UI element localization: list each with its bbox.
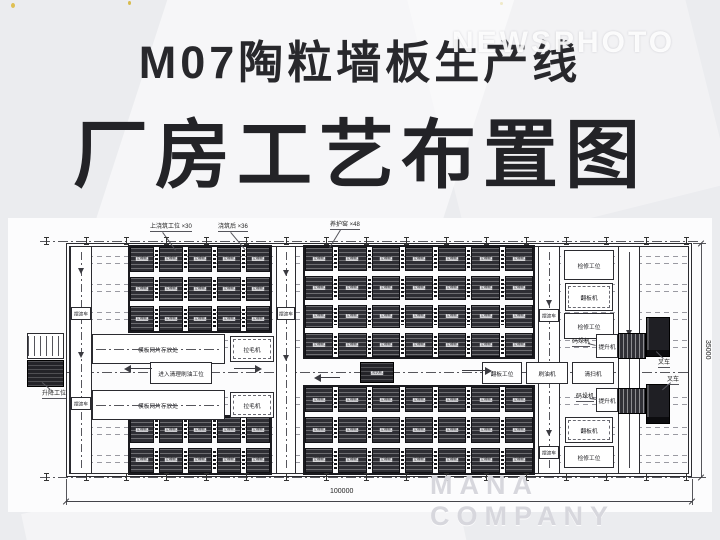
mold-cell-label: 立模机 xyxy=(413,315,425,319)
column-tick xyxy=(403,473,410,481)
mold-cell: 立模机 xyxy=(338,305,366,329)
watermark-top: NEWSPHOTO xyxy=(452,26,675,60)
mold-cell: 立模机 xyxy=(471,417,499,442)
column-tick xyxy=(483,237,490,245)
mold-cell-label: 立模机 xyxy=(165,458,177,462)
cell-separator xyxy=(434,250,437,268)
mold-cell: 立模机 xyxy=(305,276,333,300)
cell-separator xyxy=(242,250,245,269)
mold-cell-label: 立模机 xyxy=(379,257,391,261)
mold-cell: 立模机 xyxy=(246,277,270,302)
cell-separator xyxy=(501,308,504,326)
mold-cell-label: 立模机 xyxy=(446,315,458,319)
cell-separator xyxy=(242,280,245,299)
mold-cell-label: 立模机 xyxy=(194,257,206,261)
column-tick xyxy=(163,237,170,245)
station-box-label: 检修工位 xyxy=(578,453,601,462)
column-tick xyxy=(363,473,370,481)
mold-cell-label: 立模机 xyxy=(346,458,358,462)
mold-cell-label: 立模机 xyxy=(252,458,264,462)
mold-cell: 立模机 xyxy=(338,417,366,442)
mold-cell-label: 立模机 xyxy=(479,458,491,462)
mold-cell-label: 立模机 xyxy=(346,315,358,319)
ferry-car-label-text: 摆渡车 xyxy=(74,310,88,317)
callout-label: 养护窑 ×48 xyxy=(330,222,360,230)
mold-cell-label: 立模机 xyxy=(252,287,264,291)
mold-cell-label: 立模机 xyxy=(346,398,358,402)
column-tick xyxy=(683,237,690,245)
column-grid-line xyxy=(40,241,700,242)
flow-arrow xyxy=(234,368,260,369)
cell-separator xyxy=(213,250,216,269)
ferry-car-label: 摆渡车 xyxy=(71,397,91,410)
dim-text-right: 35000 xyxy=(704,340,711,359)
flow-arrow xyxy=(462,370,490,371)
mold-cell-label: 立模机 xyxy=(165,287,177,291)
mold-cell: 立模机 xyxy=(438,276,466,300)
mold-cell: 立模机 xyxy=(130,306,154,331)
station-box: 提升机 xyxy=(596,334,618,358)
mold-cell-label: 立模机 xyxy=(446,257,458,261)
column-tick xyxy=(283,237,290,245)
mold-cell: 立模机 xyxy=(217,306,241,331)
cell-separator xyxy=(467,279,470,297)
mold-cell-label: 立模机 xyxy=(136,317,148,321)
machine-fork xyxy=(646,317,670,357)
machine-grid xyxy=(618,388,646,414)
station-box: 提升机 xyxy=(596,388,618,412)
callout-label: 浇筑后 ×36 xyxy=(218,224,248,232)
station-box-inner xyxy=(233,395,271,415)
station-box-label: 进入清理刷油工位 xyxy=(158,369,204,378)
mold-cell-label: 立模机 xyxy=(313,286,325,290)
mold-cell-label: 立模机 xyxy=(223,428,235,432)
column-tick xyxy=(123,237,130,245)
cell-separator xyxy=(213,280,216,299)
cell-separator xyxy=(334,451,337,470)
mold-cell: 立模机 xyxy=(471,305,499,329)
mold-cell: 立模机 xyxy=(130,448,154,474)
station-box-label: 翻板工位 xyxy=(491,369,514,378)
mold-cell-label: 立模机 xyxy=(313,315,325,319)
cell-separator xyxy=(434,420,437,439)
mold-cell-label: 立模机 xyxy=(413,286,425,290)
mold-cell: 立模机 xyxy=(438,305,466,329)
cell-separator xyxy=(401,451,404,470)
column-tick xyxy=(83,237,90,245)
mold-cell-label: 立模机 xyxy=(313,398,325,402)
mold-cell-label: 立模机 xyxy=(446,343,458,347)
ferry-car-label: 摆渡车 xyxy=(539,446,559,459)
cell-separator xyxy=(334,250,337,268)
mold-cell-label: 立模机 xyxy=(313,428,325,432)
mold-cell: 立模机 xyxy=(246,417,270,443)
mold-cell-label: 立模机 xyxy=(513,286,525,290)
cell-separator xyxy=(155,420,158,440)
mold-cell-label: 立模机 xyxy=(136,458,148,462)
mold-cell-label: 立模机 xyxy=(252,257,264,261)
mold-cell: 立模机 xyxy=(217,417,241,443)
poster-page: M07陶粒墙板生产线 厂房工艺布置图 NEWSPHOTO 摆渡车摆渡车摆渡车摆渡… xyxy=(0,0,720,540)
column-tick xyxy=(43,473,50,481)
cell-separator xyxy=(368,336,371,354)
mold-cell: 立模机 xyxy=(305,448,333,473)
cell-separator xyxy=(501,390,504,409)
cell-separator xyxy=(242,451,245,471)
cell-separator xyxy=(467,250,470,268)
cell-separator xyxy=(368,279,371,297)
mold-cell: 立模机 xyxy=(130,277,154,302)
station-box: 进入清理刷油工位 xyxy=(150,362,212,384)
station-box-label: 提升机 xyxy=(598,396,615,405)
cell-separator xyxy=(434,336,437,354)
station-box-label: 提升机 xyxy=(598,342,615,351)
mold-cell-label: 立模机 xyxy=(223,287,235,291)
callout-label: 升降工位 xyxy=(42,391,66,399)
cell-separator xyxy=(334,308,337,326)
mold-cell: 立模机 xyxy=(372,333,400,357)
mold-cell: 立模机 xyxy=(188,306,212,331)
mold-cell-label: 立模机 xyxy=(446,458,458,462)
mold-cell: 立模机 xyxy=(405,305,433,329)
mold-cell: 立模机 xyxy=(130,247,154,272)
cell-separator xyxy=(155,451,158,471)
dim-line-right xyxy=(701,243,702,477)
mold-cell: 立模机 xyxy=(505,387,533,412)
mold-cell-label: 立模机 xyxy=(223,257,235,261)
cell-separator xyxy=(213,309,216,328)
mold-cell-label: 立模机 xyxy=(194,317,206,321)
mold-cell-label: 立模机 xyxy=(413,458,425,462)
cell-separator xyxy=(401,279,404,297)
mold-cell-label: 立模机 xyxy=(479,286,491,290)
cell-separator xyxy=(334,420,337,439)
callout-label: 叉车 xyxy=(658,360,670,368)
mold-cell: 立模机 xyxy=(217,247,241,272)
flow-arrow-down-icon xyxy=(283,355,289,364)
column-tick xyxy=(443,237,450,245)
column-tick xyxy=(243,473,250,481)
poster-title-line2: 厂房工艺布置图 xyxy=(0,94,720,203)
flow-arrow-down-icon xyxy=(78,352,84,361)
station-box: 清扫机 xyxy=(572,362,614,384)
mold-cell: 立模机 xyxy=(188,448,212,474)
cell-separator xyxy=(368,451,371,470)
station-box-label: 检修工位 xyxy=(578,322,601,331)
mold-cell: 立模机 xyxy=(338,448,366,473)
cell-separator xyxy=(434,390,437,409)
mold-cell-label: 立模机 xyxy=(413,343,425,347)
cell-separator xyxy=(467,420,470,439)
mold-cell: 立模机 xyxy=(438,333,466,357)
cell-separator xyxy=(155,280,158,299)
mold-cell: 立模机 xyxy=(159,448,183,474)
mold-cell-label: 立模机 xyxy=(223,458,235,462)
cell-separator xyxy=(213,451,216,471)
flow-arrow-down-icon xyxy=(78,268,84,277)
mold-cell-label: 立模机 xyxy=(379,315,391,319)
cell-separator xyxy=(242,420,245,440)
mold-cell-label: 立模机 xyxy=(479,398,491,402)
mold-cell: 立模机 xyxy=(505,417,533,442)
mold-cell: 立模机 xyxy=(338,276,366,300)
mold-cell: 立模机 xyxy=(405,276,433,300)
column-tick xyxy=(83,473,90,481)
mold-cell: 立模机 xyxy=(338,247,366,271)
mold-cell: 立模机 xyxy=(372,276,400,300)
mold-cell: 立模机 xyxy=(159,306,183,331)
ferry-car-label-text: 摆渡车 xyxy=(542,312,556,319)
mold-cell-label: 立模机 xyxy=(136,428,148,432)
cell-separator xyxy=(401,250,404,268)
mold-cell: 立模机 xyxy=(372,387,400,412)
mold-cell: 立模机 xyxy=(130,417,154,443)
machine-dark xyxy=(27,360,64,387)
column-tick xyxy=(243,237,250,245)
cell-separator xyxy=(501,336,504,354)
mold-cell: 立模机 xyxy=(372,417,400,442)
mold-cell-label: 立模机 xyxy=(513,398,525,402)
mold-cell: 立模机 xyxy=(159,277,183,302)
mold-cell-label: 立模机 xyxy=(446,286,458,290)
ferry-car-label-text: 摆渡车 xyxy=(542,449,556,456)
cell-separator xyxy=(368,390,371,409)
dim-text-bottom: 100000 xyxy=(330,488,353,495)
cell-separator xyxy=(334,279,337,297)
cell-separator xyxy=(401,420,404,439)
mold-cell: 立模机 xyxy=(305,417,333,442)
machine-fork xyxy=(646,384,670,424)
mold-cell: 立模机 xyxy=(372,448,400,473)
mold-cell: 立模机 xyxy=(246,247,270,272)
callout-label: 上浇筑工位 ×30 xyxy=(150,224,192,232)
cell-separator xyxy=(401,308,404,326)
mold-cell: 立模机 xyxy=(217,277,241,302)
mold-cell-label: 立模机 xyxy=(479,315,491,319)
mold-cell: 立模机 xyxy=(471,333,499,357)
station-box: 刷油机 xyxy=(526,362,568,384)
flow-arrow xyxy=(126,368,152,369)
cell-separator xyxy=(213,420,216,440)
mold-cell-label: 立模机 xyxy=(413,398,425,402)
cell-separator xyxy=(467,451,470,470)
machine-grid xyxy=(618,333,646,359)
station-box-centerline xyxy=(96,405,221,406)
mold-cell-label: 立模机 xyxy=(513,458,525,462)
mold-cell: 立模机 xyxy=(338,387,366,412)
station-box-label: 清扫机 xyxy=(584,369,601,378)
column-tick xyxy=(43,237,50,245)
cell-separator xyxy=(184,420,187,440)
cell-separator xyxy=(467,308,470,326)
mold-cell: 立模机 xyxy=(438,417,466,442)
mold-cell: 立模机 xyxy=(471,276,499,300)
mold-cell-label: 立模机 xyxy=(446,398,458,402)
mold-cell: 立模机 xyxy=(159,417,183,443)
mold-cell-label: 立模机 xyxy=(313,257,325,261)
station-box-inner xyxy=(233,339,271,359)
mold-cell: 立模机 xyxy=(338,333,366,357)
station-box-inner xyxy=(568,420,610,440)
mold-cell-label: 立模机 xyxy=(313,343,325,347)
mold-cell-label: 立模机 xyxy=(379,343,391,347)
mold-cell: 立模机 xyxy=(305,387,333,412)
cell-separator xyxy=(434,279,437,297)
mold-cell-label: 立模机 xyxy=(252,428,264,432)
cell-separator xyxy=(184,309,187,328)
mold-cell-label: 立模机 xyxy=(346,428,358,432)
column-tick xyxy=(323,473,330,481)
mold-cell-label: 立模机 xyxy=(194,458,206,462)
ferry-car-label: 摆渡车 xyxy=(277,307,295,320)
ferry-car-label-text: 摆渡车 xyxy=(279,310,293,317)
mold-cell-label: 立模机 xyxy=(136,287,148,291)
mold-cell: 立模机 xyxy=(246,306,270,331)
mold-cell-label: 立模机 xyxy=(313,458,325,462)
column-tick xyxy=(363,237,370,245)
flow-arrow-down-icon xyxy=(546,300,552,309)
cell-separator xyxy=(467,336,470,354)
mold-cell-label: 立模机 xyxy=(513,315,525,319)
lane-centerline xyxy=(629,252,630,468)
mold-cell: 立模机 xyxy=(372,247,400,271)
flow-arrow-down-icon xyxy=(283,270,289,279)
mold-cell-label: 立模机 xyxy=(379,286,391,290)
mold-cell-label: 立模机 xyxy=(379,458,391,462)
cell-separator xyxy=(368,420,371,439)
mold-cell-label: 立模机 xyxy=(346,286,358,290)
mold-cell-label: 立模机 xyxy=(479,428,491,432)
column-tick xyxy=(203,473,210,481)
machine-dark: 浇筑机 xyxy=(360,362,394,383)
station-box: 检修工位 xyxy=(564,250,614,280)
ferry-car-label: 摆渡车 xyxy=(71,307,91,320)
mold-cell-label: 立模机 xyxy=(194,287,206,291)
mold-cell-label: 立模机 xyxy=(194,428,206,432)
column-tick xyxy=(203,237,210,245)
column-tick xyxy=(563,237,570,245)
mold-cell-label: 立模机 xyxy=(513,428,525,432)
flow-arrow xyxy=(316,377,340,378)
column-tick xyxy=(323,237,330,245)
mold-cell: 立模机 xyxy=(471,247,499,271)
station-box-label: 检修工位 xyxy=(578,261,601,270)
machine-rack xyxy=(27,333,64,359)
mold-cell: 立模机 xyxy=(405,448,433,473)
watermark-bottom: MANA COMPANY xyxy=(430,470,720,532)
mold-cell-label: 立模机 xyxy=(413,257,425,261)
cell-separator xyxy=(184,250,187,269)
mold-cell: 立模机 xyxy=(438,387,466,412)
mold-cell-label: 立模机 xyxy=(252,317,264,321)
cell-separator xyxy=(155,309,158,328)
mold-cell-label: 立模机 xyxy=(446,428,458,432)
station-box-centerline xyxy=(96,349,221,350)
mold-cell-label: 立模机 xyxy=(479,343,491,347)
column-tick xyxy=(523,237,530,245)
cell-separator xyxy=(501,420,504,439)
column-tick xyxy=(603,237,610,245)
mold-cell: 立模机 xyxy=(305,333,333,357)
machine-label: 浇筑机 xyxy=(371,371,383,375)
column-tick xyxy=(123,473,130,481)
mold-cell-label: 立模机 xyxy=(479,257,491,261)
ferry-car-label-text: 摆渡车 xyxy=(74,400,88,407)
ferry-car-label: 摆渡车 xyxy=(539,309,559,322)
mold-cell: 立模机 xyxy=(305,305,333,329)
cell-separator xyxy=(368,250,371,268)
mold-cell-label: 立模机 xyxy=(136,257,148,261)
column-tick xyxy=(283,473,290,481)
cell-separator xyxy=(401,390,404,409)
cell-separator xyxy=(467,390,470,409)
column-tick xyxy=(643,237,650,245)
mold-cell: 立模机 xyxy=(505,305,533,329)
mold-cell: 立模机 xyxy=(405,417,433,442)
cell-separator xyxy=(368,308,371,326)
mold-cell: 立模机 xyxy=(505,333,533,357)
mold-cell: 立模机 xyxy=(372,305,400,329)
mold-cell: 立模机 xyxy=(405,387,433,412)
mold-cell: 立模机 xyxy=(471,387,499,412)
mold-cell-label: 立模机 xyxy=(513,343,525,347)
cell-separator xyxy=(434,308,437,326)
flow-arrow-down-icon xyxy=(546,430,552,439)
mold-cell-label: 立模机 xyxy=(346,257,358,261)
cell-separator xyxy=(184,280,187,299)
cell-separator xyxy=(334,390,337,409)
mold-cell: 立模机 xyxy=(188,417,212,443)
mold-cell-label: 立模机 xyxy=(346,343,358,347)
mold-cell: 立模机 xyxy=(159,247,183,272)
mold-cell: 立模机 xyxy=(438,247,466,271)
mold-cell: 立模机 xyxy=(305,247,333,271)
mold-cell-label: 立模机 xyxy=(413,428,425,432)
mold-cell: 立模机 xyxy=(405,333,433,357)
mold-cell-label: 立模机 xyxy=(223,317,235,321)
station-box-inner xyxy=(568,286,610,308)
station-box-label: 刷油机 xyxy=(538,369,555,378)
mold-cell: 立模机 xyxy=(188,277,212,302)
column-tick xyxy=(403,237,410,245)
cell-separator xyxy=(501,279,504,297)
cell-separator xyxy=(434,451,437,470)
mold-cell: 立模机 xyxy=(188,247,212,272)
cell-separator xyxy=(501,451,504,470)
mold-cell-label: 立模机 xyxy=(165,428,177,432)
mold-cell: 立模机 xyxy=(405,247,433,271)
cell-separator xyxy=(334,336,337,354)
mold-cell-label: 立模机 xyxy=(165,317,177,321)
cell-separator xyxy=(242,309,245,328)
mold-cell-label: 立模机 xyxy=(379,398,391,402)
mold-cell: 立模机 xyxy=(246,448,270,474)
mold-cell-label: 立模机 xyxy=(379,428,391,432)
column-tick xyxy=(163,473,170,481)
mold-cell-label: 立模机 xyxy=(165,257,177,261)
cell-separator xyxy=(184,451,187,471)
cell-separator xyxy=(155,250,158,269)
cell-separator xyxy=(501,250,504,268)
mold-cell: 立模机 xyxy=(505,247,533,271)
mold-cell: 立模机 xyxy=(217,448,241,474)
mold-cell-label: 立模机 xyxy=(513,257,525,261)
station-box: 检修工位 xyxy=(564,446,614,468)
cell-separator xyxy=(401,336,404,354)
mold-cell: 立模机 xyxy=(505,276,533,300)
